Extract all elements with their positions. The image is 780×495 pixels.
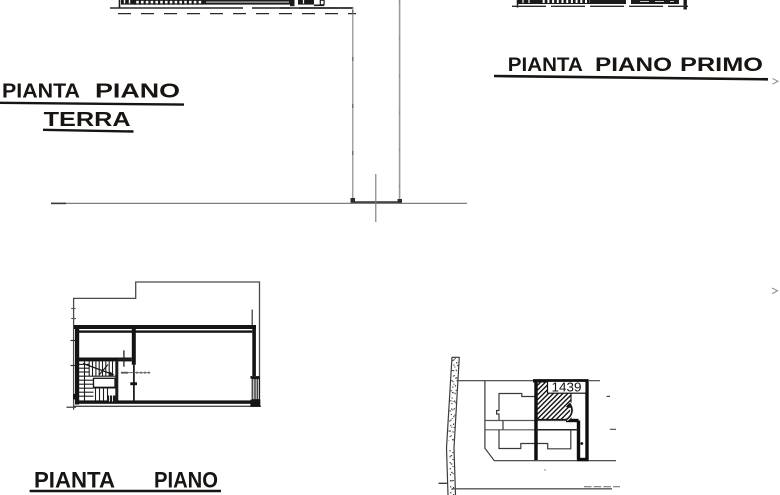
- svg-text:PIANO: PIANO: [154, 468, 218, 493]
- svg-text:1439: 1439: [552, 380, 582, 395]
- svg-text:PRIMO: PRIMO: [680, 55, 763, 76]
- svg-text:PIANO: PIANO: [95, 81, 180, 103]
- svg-text:PIANTA: PIANTA: [508, 55, 583, 76]
- svg-text:PIANO: PIANO: [595, 55, 672, 76]
- svg-text:PIANTA: PIANTA: [2, 81, 80, 103]
- svg-text:PIANTA: PIANTA: [34, 468, 115, 493]
- svg-text:TERRA: TERRA: [44, 109, 131, 131]
